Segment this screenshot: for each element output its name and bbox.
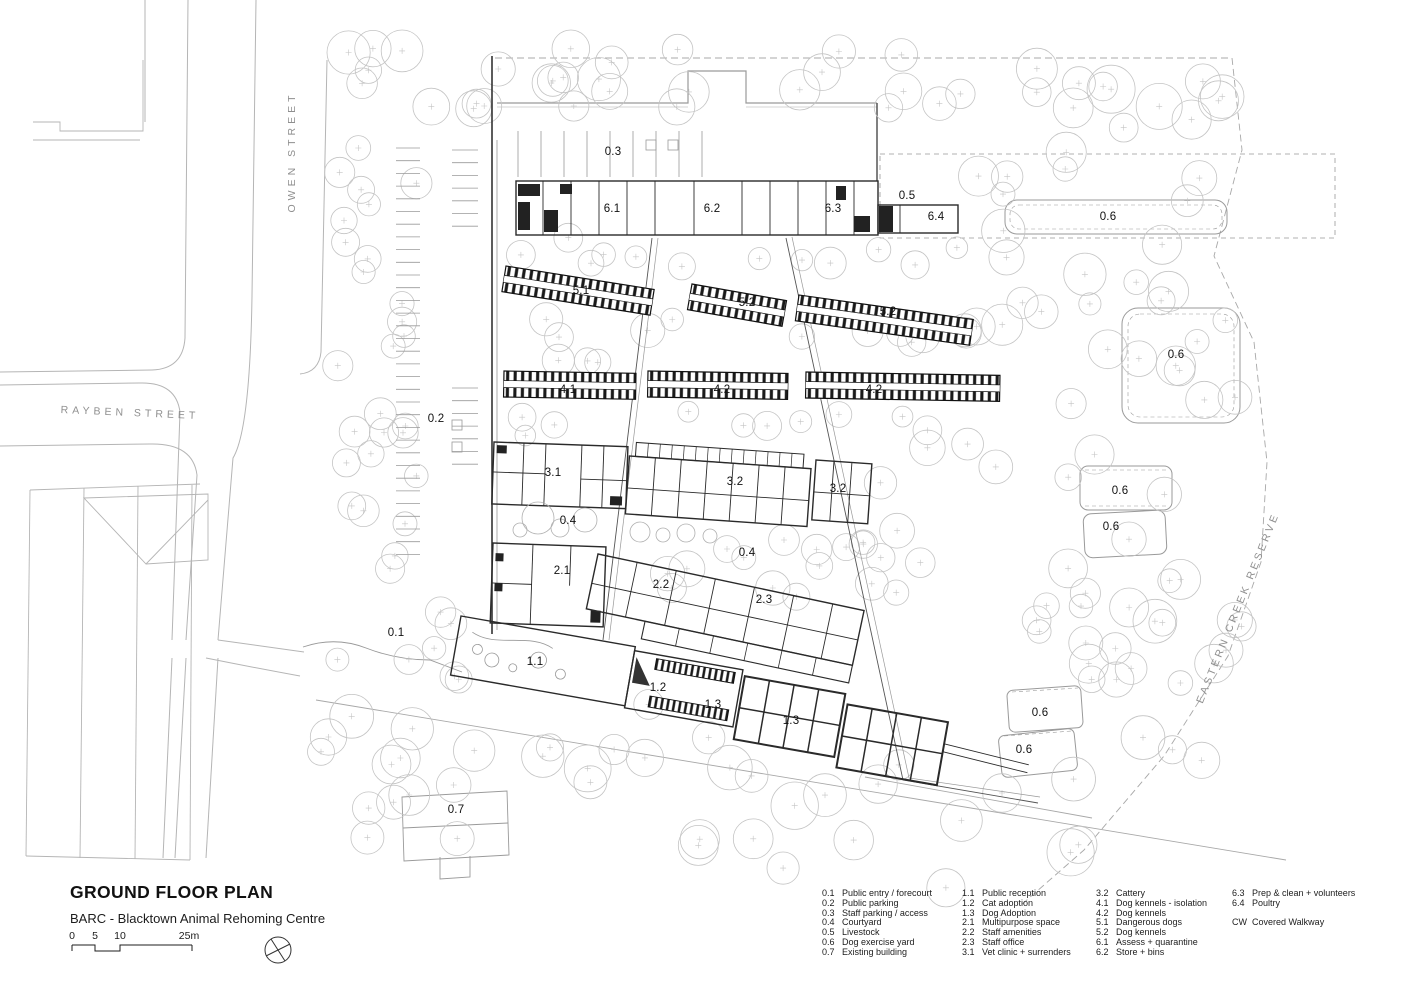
plan-label-5.2: 5.2 — [880, 306, 897, 318]
plan-label-3.2: 3.2 — [830, 483, 847, 495]
legend-item-3.1: 3.1Vet clinic + surrenders — [962, 948, 1096, 958]
building-1-3b — [836, 704, 948, 785]
plan-label-0.6: 0.6 — [1100, 211, 1117, 223]
svg-text:10: 10 — [114, 930, 126, 942]
neighbor-lots — [26, 60, 509, 879]
plan-label-2.3: 2.3 — [756, 594, 773, 606]
floor-plan-sheet: 0.36.16.26.30.56.40.65.15.25.20.64.14.24… — [0, 0, 1414, 1000]
plan-label-3.2: 3.2 — [727, 476, 744, 488]
building-2-2-2-3 — [583, 554, 864, 683]
plan-label-2.1: 2.1 — [554, 565, 571, 577]
legend-column-2: 1.1Public reception1.2Cat adoption1.3Dog… — [962, 889, 1096, 958]
page-subtitle: BARC - Blacktown Animal Rehoming Centre — [70, 911, 325, 926]
tree-layer — [308, 30, 1257, 907]
plan-label-4.2: 4.2 — [714, 384, 731, 396]
legend-column-3: 3.2Cattery4.1Dog kennels - isolation4.2D… — [1096, 889, 1232, 958]
plan-label-1.3: 1.3 — [783, 715, 800, 727]
building-6-1-6-2-6-3 — [516, 181, 958, 235]
plan-label-0.4: 0.4 — [739, 547, 756, 559]
kennel-row-5-2a — [687, 284, 786, 326]
legend-column-1: 0.1Public entry / forecourt0.2Public par… — [822, 889, 962, 958]
street-label-owen: OWEN STREET — [286, 91, 298, 212]
buildings — [446, 181, 1037, 800]
svg-text:25m: 25m — [179, 930, 200, 942]
plan-label-0.6: 0.6 — [1168, 349, 1185, 361]
site-plan-drawing — [0, 0, 1414, 1000]
building-6-4 — [878, 205, 958, 233]
streets-linework — [0, 0, 327, 858]
plan-label-5.1: 5.1 — [573, 285, 590, 297]
legend-item-0.7: 0.7Existing building — [822, 948, 962, 958]
plan-label-0.2: 0.2 — [428, 413, 445, 425]
plan-label-0.7: 0.7 — [448, 804, 465, 816]
parking-bays — [396, 131, 702, 554]
plan-label-1.1: 1.1 — [527, 656, 544, 668]
legend-item-6.2: 6.2Store + bins — [1096, 948, 1232, 958]
legend-item-6.4: 6.4Poultry — [1232, 899, 1382, 909]
plan-label-4.2: 4.2 — [866, 384, 883, 396]
building-2-1 — [490, 543, 606, 627]
plan-label-4.1: 4.1 — [560, 384, 577, 396]
plan-label-1.2: 1.2 — [650, 682, 667, 694]
legend: 0.1Public entry / forecourt0.2Public par… — [822, 889, 1382, 958]
plan-label-0.3: 0.3 — [605, 146, 622, 158]
plan-label-1.3: 1.3 — [705, 699, 722, 711]
plan-label-0.6: 0.6 — [1112, 485, 1129, 497]
plan-label-3.1: 3.1 — [545, 467, 562, 479]
plan-label-6.3: 6.3 — [825, 203, 842, 215]
kennel-row-5-2b — [795, 295, 973, 345]
plan-label-0.6: 0.6 — [1016, 744, 1033, 756]
building-3-2 — [625, 442, 812, 527]
plan-label-0.4: 0.4 — [560, 515, 577, 527]
plan-label-0.1: 0.1 — [388, 627, 405, 639]
site-boundary — [303, 58, 1335, 906]
svg-text:0: 0 — [69, 930, 75, 942]
page-title: GROUND FLOOR PLAN — [70, 882, 325, 903]
plan-label-0.6: 0.6 — [1032, 707, 1049, 719]
legend-column-4: 6.3Prep & clean + volunteers6.4PoultryCW… — [1232, 889, 1382, 958]
building-1-1-1-2-1-3 — [446, 616, 1037, 800]
plan-label-2.2: 2.2 — [653, 579, 670, 591]
svg-text:5: 5 — [92, 930, 98, 942]
plan-label-5.2: 5.2 — [739, 297, 756, 309]
covered-walkways — [492, 56, 1040, 803]
title-block: GROUND FLOOR PLAN BARC - Blacktown Anima… — [70, 882, 325, 926]
plan-label-0.6: 0.6 — [1103, 521, 1120, 533]
plan-label-6.1: 6.1 — [604, 203, 621, 215]
plan-label-0.5: 0.5 — [899, 190, 916, 202]
north-arrow-icon — [262, 934, 294, 966]
legend-item-CW: CWCovered Walkway — [1232, 918, 1382, 928]
kennel-row-4-2b — [806, 372, 1000, 401]
plan-label-6.4: 6.4 — [928, 211, 945, 223]
plan-label-6.2: 6.2 — [704, 203, 721, 215]
